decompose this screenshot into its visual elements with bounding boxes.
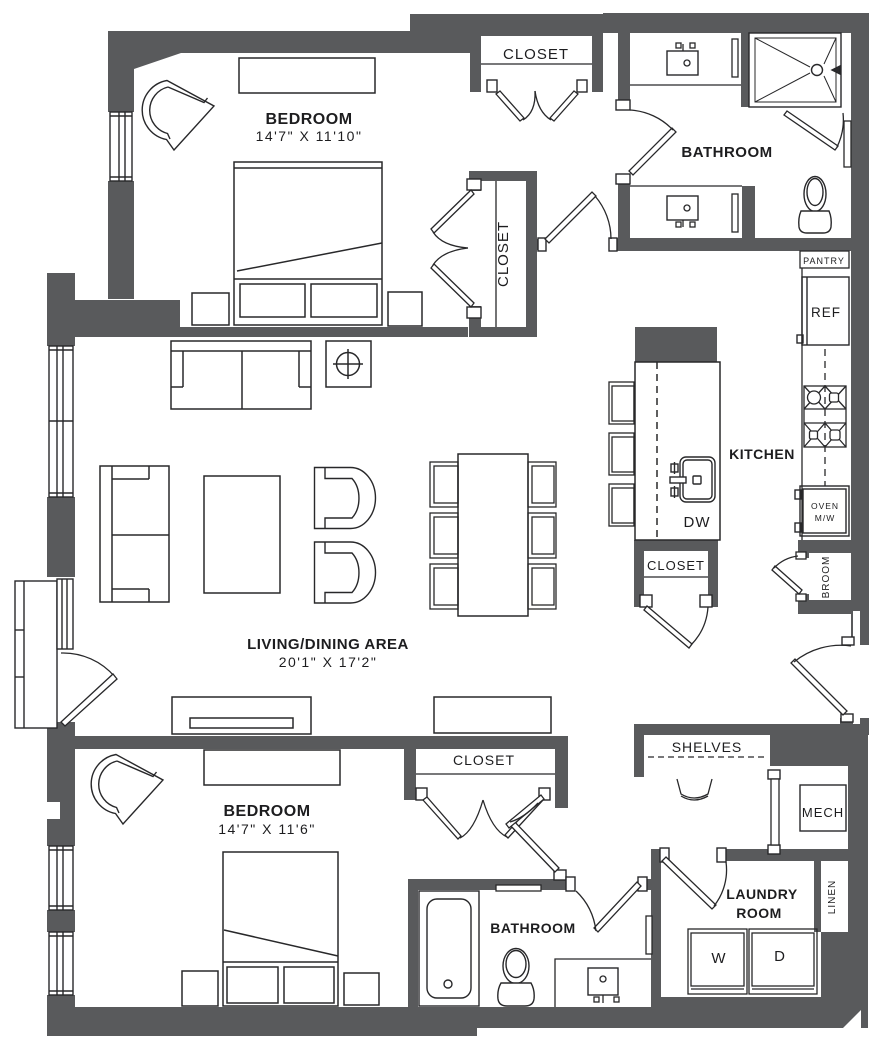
svg-text:CLOSET: CLOSET (503, 46, 569, 63)
svg-text:CLOSET: CLOSET (647, 558, 705, 573)
svg-text:MECH: MECH (802, 805, 844, 820)
svg-text:14'7" X 11'6": 14'7" X 11'6" (218, 821, 316, 837)
svg-text:BATHROOM: BATHROOM (681, 144, 772, 161)
svg-text:BROOM: BROOM (821, 556, 832, 599)
svg-text:BEDROOM: BEDROOM (223, 803, 310, 820)
svg-text:PANTRY: PANTRY (803, 256, 845, 266)
svg-text:BATHROOM: BATHROOM (490, 920, 575, 936)
svg-text:CLOSET: CLOSET (495, 221, 512, 287)
svg-text:M/W: M/W (815, 513, 835, 523)
svg-text:D: D (774, 948, 786, 965)
svg-text:KITCHEN: KITCHEN (729, 446, 795, 462)
svg-text:OVEN: OVEN (811, 501, 839, 511)
svg-text:LINEN: LINEN (827, 880, 838, 914)
svg-text:CLOSET: CLOSET (453, 752, 515, 768)
svg-text:BEDROOM: BEDROOM (265, 111, 352, 128)
svg-text:LIVING/DINING AREA: LIVING/DINING AREA (247, 636, 409, 653)
svg-text:20'1" X 17'2": 20'1" X 17'2" (279, 654, 378, 670)
svg-text:14'7" X 11'10": 14'7" X 11'10" (256, 128, 363, 144)
svg-text:DW: DW (684, 514, 711, 531)
svg-text:W: W (711, 950, 726, 967)
svg-text:ROOM: ROOM (736, 905, 782, 921)
svg-text:LAUNDRY: LAUNDRY (726, 886, 798, 902)
svg-text:SHELVES: SHELVES (672, 739, 743, 755)
svg-text:REF: REF (811, 305, 841, 320)
